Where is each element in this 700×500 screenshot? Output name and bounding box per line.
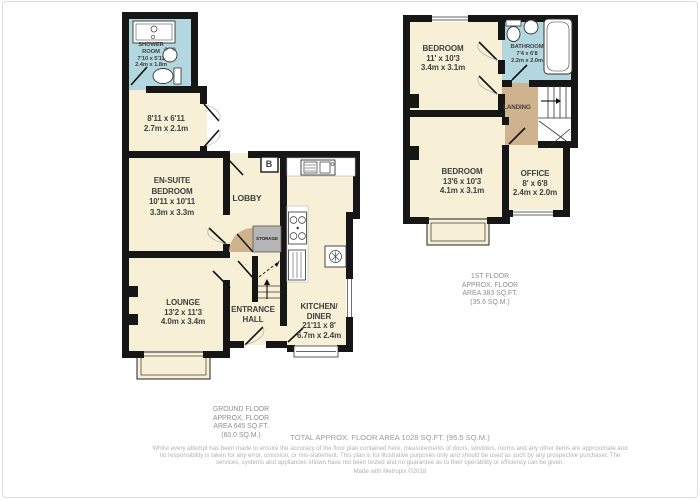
room-label-office: OFFICE 8' x 6'8 2.4m x 2.0m bbox=[513, 169, 557, 198]
ground-floor-area-label: GROUND FLOOR APPROX. FLOOR AREA 645 SQ.F… bbox=[213, 406, 269, 440]
room-label-entrance-hall: ENTRANCE HALL bbox=[231, 305, 275, 324]
disclaimer-text: Whilst every attempt has been made to en… bbox=[150, 445, 630, 467]
floorplan-page: SHOWER ROOM 7'10 x 5'11 2.4m x 1.8m 8'11… bbox=[0, 0, 700, 500]
kitchen-counter-icon bbox=[287, 158, 355, 176]
bedroom-bay-window bbox=[427, 219, 489, 245]
toilet-icon bbox=[506, 20, 521, 42]
room-label-rear-room: 8'11 x 6'11 2.7m x 2.1m bbox=[144, 114, 188, 133]
shower-toilet-icon bbox=[153, 68, 181, 84]
room-label-bathroom: BATHROOM 7'4 x 6'8 2.2m x 2.0m bbox=[511, 44, 544, 64]
room-label-bedroom-front: BEDROOM 11' x 10'3 3.4m x 3.1m bbox=[421, 44, 465, 73]
ground-floor-plan bbox=[60, 0, 370, 400]
room-label-bedroom-back: BEDROOM 13'6 x 10'3 4.1m x 3.1m bbox=[440, 167, 484, 196]
first-floor-area-label: 1ST FLOOR APPROX. FLOOR AREA 383 SQ.FT. … bbox=[462, 273, 518, 307]
room-label-landing: LANDING bbox=[503, 104, 531, 111]
basin-icon bbox=[524, 19, 538, 34]
room-label-kitchen-diner: KITCHEN/ DINER 21'11 x 8' 6.7m x 2.4m bbox=[297, 302, 341, 340]
shower-tray-icon bbox=[133, 21, 175, 43]
washing-machine-icon bbox=[325, 246, 346, 267]
bathtub-icon bbox=[544, 19, 572, 74]
room-label-lounge: LOUNGE 13'2 x 11'3 4.0m x 3.4m bbox=[161, 298, 205, 327]
room-label-shower-room: SHOWER ROOM 7'10 x 5'11 2.4m x 1.8m bbox=[135, 42, 167, 69]
room-label-lobby: LOBBY bbox=[232, 194, 261, 204]
boiler-label: B bbox=[266, 160, 272, 169]
room-label-storage: STORAGE bbox=[256, 236, 278, 241]
disclaimer: Whilst every attempt has been made to en… bbox=[150, 445, 630, 475]
room-label-ensuite-bedroom: EN-SUITE BEDROOM 10'11 x 10'11 3.3m x 3.… bbox=[149, 176, 195, 218]
metropix-credit: Made with Metropix ©2018 bbox=[150, 468, 630, 475]
tall-unit-icon bbox=[289, 250, 306, 280]
lounge-bay-window bbox=[137, 352, 210, 379]
total-area-label: TOTAL APPROX. FLOOR AREA 1028 SQ.FT. (95… bbox=[290, 433, 489, 443]
